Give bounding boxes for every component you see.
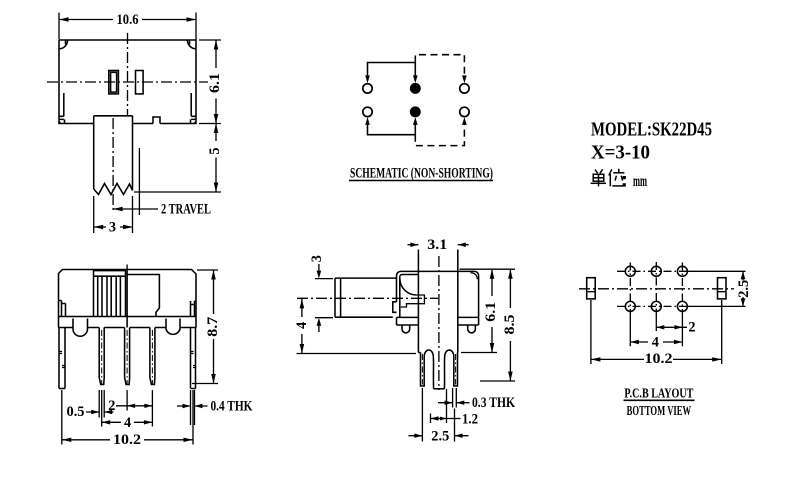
svg-text:4: 4 <box>652 335 659 351</box>
svg-text:4: 4 <box>294 322 310 329</box>
svg-text:10.2: 10.2 <box>645 351 673 367</box>
svg-text:8.5: 8.5 <box>502 315 518 335</box>
svg-text:2 TRAVEL: 2 TRAVEL <box>161 202 211 218</box>
svg-text:X=3-10: X=3-10 <box>591 142 650 164</box>
svg-text:10.2: 10.2 <box>113 432 141 448</box>
svg-text:1.2: 1.2 <box>462 411 478 427</box>
svg-text:8.7: 8.7 <box>205 317 221 337</box>
svg-text:3.1: 3.1 <box>427 237 447 253</box>
svg-text:2.5: 2.5 <box>736 280 752 298</box>
svg-text:2: 2 <box>688 320 695 336</box>
svg-text:3: 3 <box>309 255 325 262</box>
svg-text:4: 4 <box>124 415 131 431</box>
svg-text:0.5: 0.5 <box>67 404 85 420</box>
svg-text:SCHEMATIC (NON-SHORTING): SCHEMATIC (NON-SHORTING) <box>350 166 493 182</box>
svg-text:6.1: 6.1 <box>483 302 499 322</box>
svg-text:10.6: 10.6 <box>117 12 139 28</box>
svg-text:0.3 THK: 0.3 THK <box>472 395 516 411</box>
svg-text:BOTTOM VIEW: BOTTOM VIEW <box>627 403 692 418</box>
svg-text:5: 5 <box>207 147 223 154</box>
svg-text:mm: mm <box>633 173 647 190</box>
svg-text:MODEL:SK22D45: MODEL:SK22D45 <box>591 119 712 141</box>
svg-text:P.C.B LAYOUT: P.C.B LAYOUT <box>624 386 693 401</box>
svg-text:2.5: 2.5 <box>431 429 449 445</box>
svg-text:6.1: 6.1 <box>207 73 223 93</box>
svg-text:0.4 THK: 0.4 THK <box>211 399 254 415</box>
svg-text:3: 3 <box>109 220 116 236</box>
